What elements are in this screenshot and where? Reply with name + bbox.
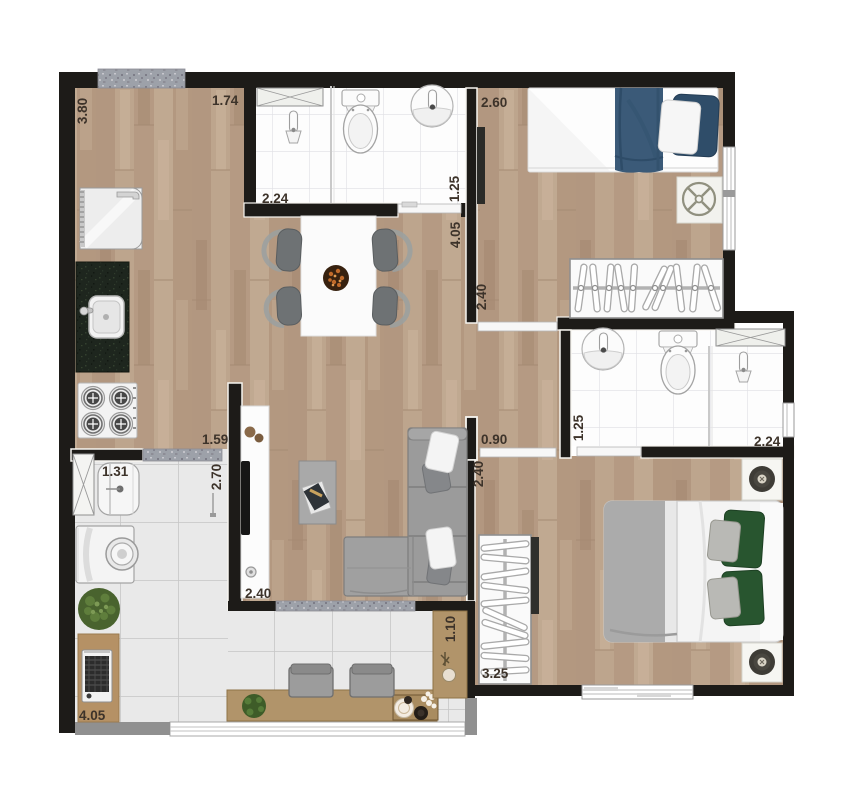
svg-text:3.80: 3.80: [75, 98, 90, 124]
svg-text:2.70: 2.70: [209, 464, 224, 490]
svg-text:2.40: 2.40: [474, 284, 489, 310]
svg-text:1.25: 1.25: [447, 175, 462, 202]
svg-text:0.90: 0.90: [481, 432, 507, 447]
svg-text:1.25: 1.25: [571, 414, 586, 441]
svg-text:2.24: 2.24: [754, 434, 781, 449]
svg-text:2.24: 2.24: [262, 191, 289, 206]
svg-text:1.31: 1.31: [102, 464, 129, 479]
svg-text:1.59: 1.59: [202, 432, 228, 447]
svg-text:4.05: 4.05: [79, 708, 106, 723]
svg-text:2.40: 2.40: [245, 586, 271, 601]
svg-text:1.10: 1.10: [443, 616, 458, 642]
svg-text:2.40: 2.40: [471, 461, 486, 487]
svg-text:4.05: 4.05: [448, 221, 463, 248]
svg-text:2.60: 2.60: [481, 95, 507, 110]
svg-text:3.25: 3.25: [482, 666, 509, 681]
svg-text:1.74: 1.74: [212, 93, 239, 108]
